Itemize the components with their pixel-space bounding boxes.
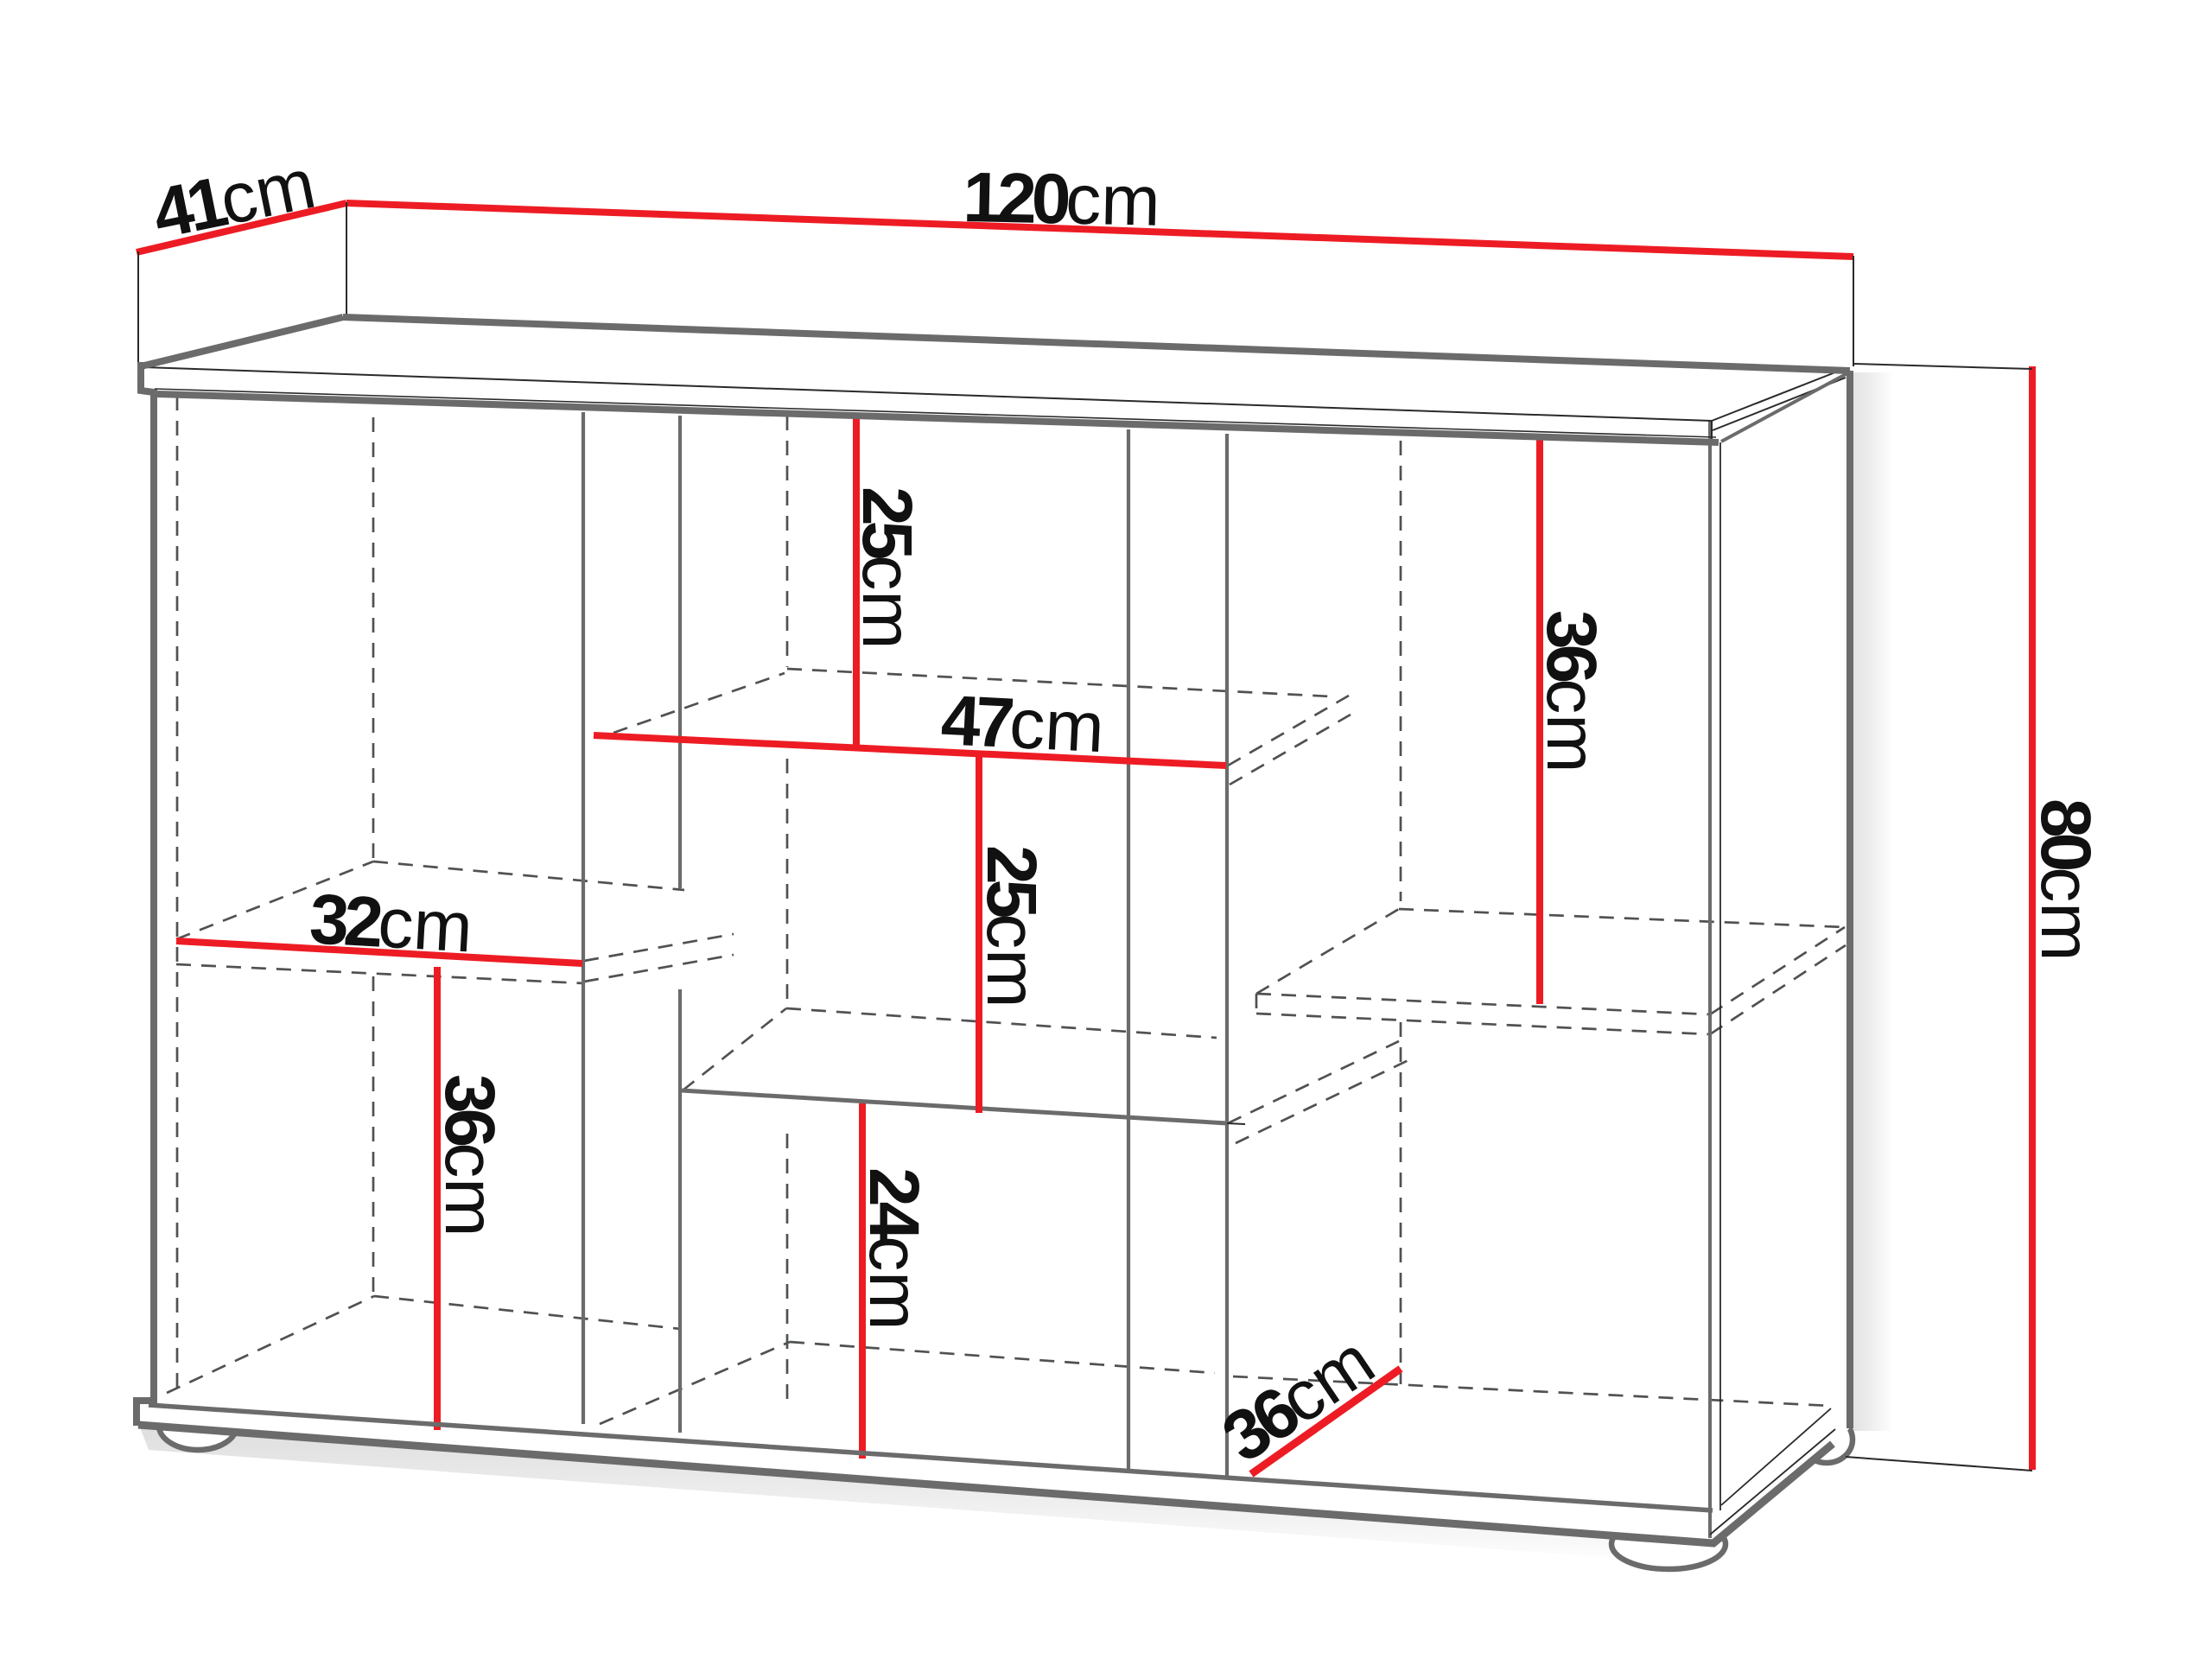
svg-text:32cm: 32cm <box>308 880 474 967</box>
svg-text:36cm: 36cm <box>1532 610 1611 773</box>
svg-text:80cm: 80cm <box>2026 798 2105 962</box>
svg-text:120cm: 120cm <box>963 158 1161 241</box>
svg-text:36cm: 36cm <box>430 1074 509 1237</box>
svg-text:25cm: 25cm <box>848 486 926 650</box>
svg-text:25cm: 25cm <box>972 845 1051 1008</box>
svg-text:47cm: 47cm <box>939 681 1106 767</box>
svg-text:24cm: 24cm <box>855 1167 933 1331</box>
